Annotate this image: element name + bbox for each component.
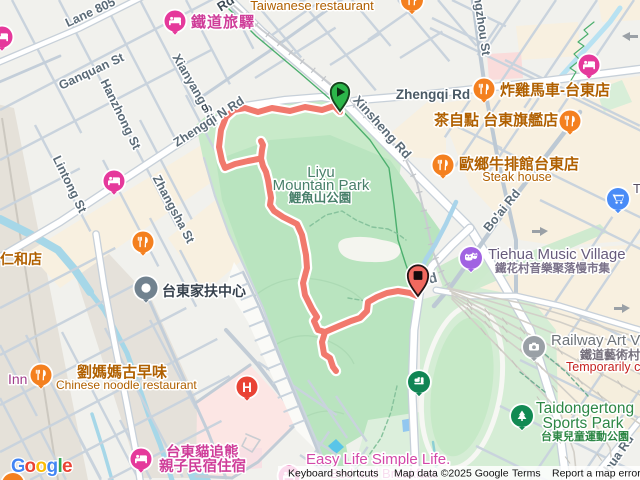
svg-text:Sports Park: Sports Park <box>543 415 624 432</box>
svg-text:o: o <box>25 456 37 477</box>
svg-text:Railway Art Villag: Railway Art Villag <box>551 332 640 349</box>
svg-text:鯉魚山公園: 鯉魚山公園 <box>289 190 352 205</box>
svg-text:鐵道旅驛: 鐵道旅驛 <box>191 13 255 31</box>
svg-text:Steak house: Steak house <box>482 170 552 184</box>
svg-text:e: e <box>62 456 73 477</box>
svg-text:台東兒童運動公園: 台東兒童運動公園 <box>541 429 629 443</box>
svg-text:g: g <box>47 456 59 477</box>
svg-text:茶自點 台東旗艦店: 茶自點 台東旗艦店 <box>434 111 558 129</box>
svg-text:H: H <box>242 380 252 395</box>
svg-text:Terms: Terms <box>512 468 541 480</box>
svg-text:Ta: Ta <box>633 181 640 196</box>
svg-text:炸雞馬車-台東店: 炸雞馬車-台東店 <box>500 81 610 99</box>
svg-text:台東家扶中心: 台東家扶中心 <box>162 283 246 299</box>
svg-text:Keyboard shortcuts: Keyboard shortcuts <box>288 468 378 480</box>
svg-text:仁和店: 仁和店 <box>0 251 42 267</box>
svg-text:Report a map error: Report a map error <box>552 468 640 480</box>
svg-text:Map data ©2025 Google: Map data ©2025 Google <box>394 468 509 480</box>
svg-text:Chinese noodle restaurant: Chinese noodle restaurant <box>56 378 197 392</box>
svg-text:Inn: Inn <box>8 371 27 387</box>
svg-text:Taiwanese restaurant: Taiwanese restaurant <box>250 0 374 13</box>
svg-text:Temporarily closed: Temporarily closed <box>566 360 640 374</box>
svg-text:Zhengqi Rd: Zhengqi Rd <box>396 87 470 102</box>
svg-text:Tiehua Music Village: Tiehua Music Village <box>488 246 626 263</box>
svg-text:鐵花村音樂聚落慢市集: 鐵花村音樂聚落慢市集 <box>495 261 610 275</box>
svg-text:親子民宿住宿: 親子民宿住宿 <box>159 457 246 475</box>
svg-text:o: o <box>36 456 48 477</box>
